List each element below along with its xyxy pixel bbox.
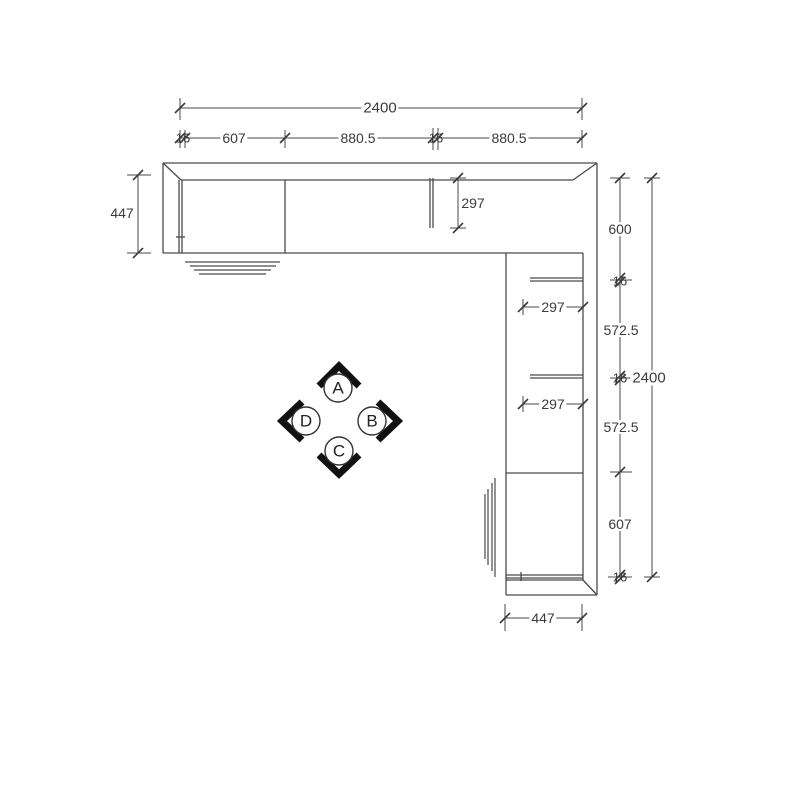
drawing-canvas — [0, 0, 800, 800]
marker-label-a: A — [332, 380, 343, 397]
cabinet-outline — [163, 163, 597, 595]
dim-label-16-b: 16 — [429, 132, 443, 145]
dim-label-16-c: 16 — [613, 275, 627, 288]
hatch-lines-bottom — [485, 478, 495, 577]
dim-label-572-1: 572.5 — [601, 323, 640, 337]
dimension-lines — [127, 98, 660, 631]
dim-label-297-top: 297 — [459, 196, 486, 210]
dim-label-top-total: 2400 — [361, 101, 398, 116]
dim-label-16-e: 16 — [613, 571, 627, 584]
dim-label-297-shelf1: 297 — [539, 300, 566, 314]
marker-label-d: D — [300, 413, 312, 430]
dim-label-left-447: 447 — [108, 206, 135, 220]
dim-label-bottom-447: 447 — [529, 611, 556, 625]
dim-label-right-total: 2400 — [630, 371, 667, 386]
dim-label-600: 600 — [606, 222, 633, 236]
marker-label-b: B — [366, 413, 377, 430]
dim-label-880-1: 880.5 — [338, 131, 377, 145]
marker-label-c: C — [333, 443, 345, 460]
cad-drawing-page: 2400 16 607 880.5 16 880.5 447 297 600 1… — [0, 0, 800, 800]
dim-label-16-a: 16 — [176, 132, 190, 145]
dim-label-607-top: 607 — [220, 131, 247, 145]
hatch-lines-left — [185, 262, 280, 274]
dim-label-572-2: 572.5 — [601, 420, 640, 434]
dimension-ticks — [133, 103, 657, 623]
dim-label-607-right: 607 — [606, 517, 633, 531]
dim-label-880-2: 880.5 — [489, 131, 528, 145]
dim-label-16-d: 16 — [613, 372, 627, 385]
dim-label-297-shelf2: 297 — [539, 397, 566, 411]
